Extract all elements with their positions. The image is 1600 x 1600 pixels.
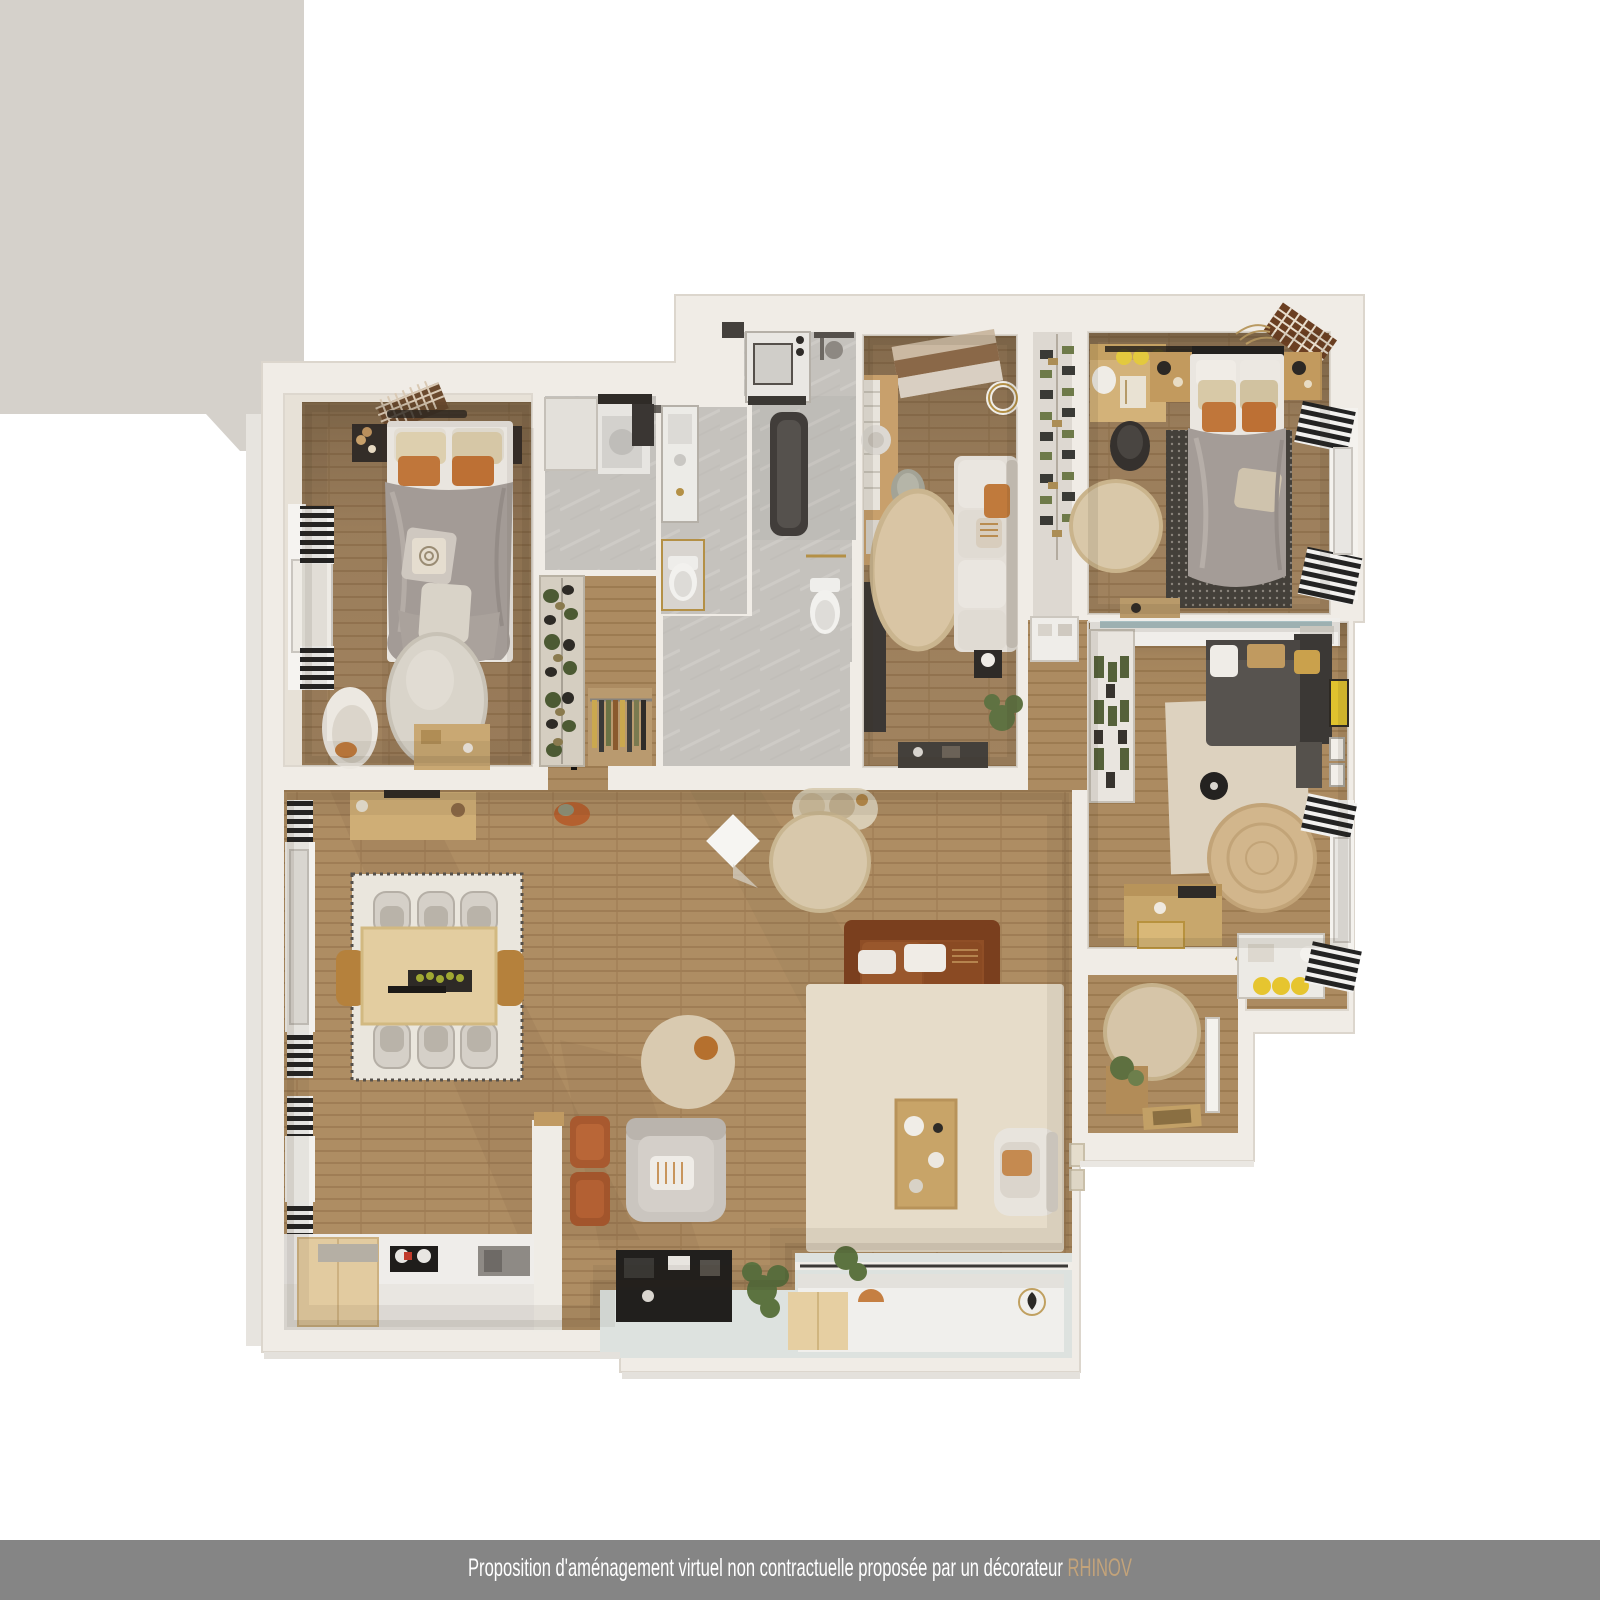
svg-text:Proposition d'aménagement virt: Proposition d'aménagement virtuel non co… [468, 1554, 1132, 1582]
